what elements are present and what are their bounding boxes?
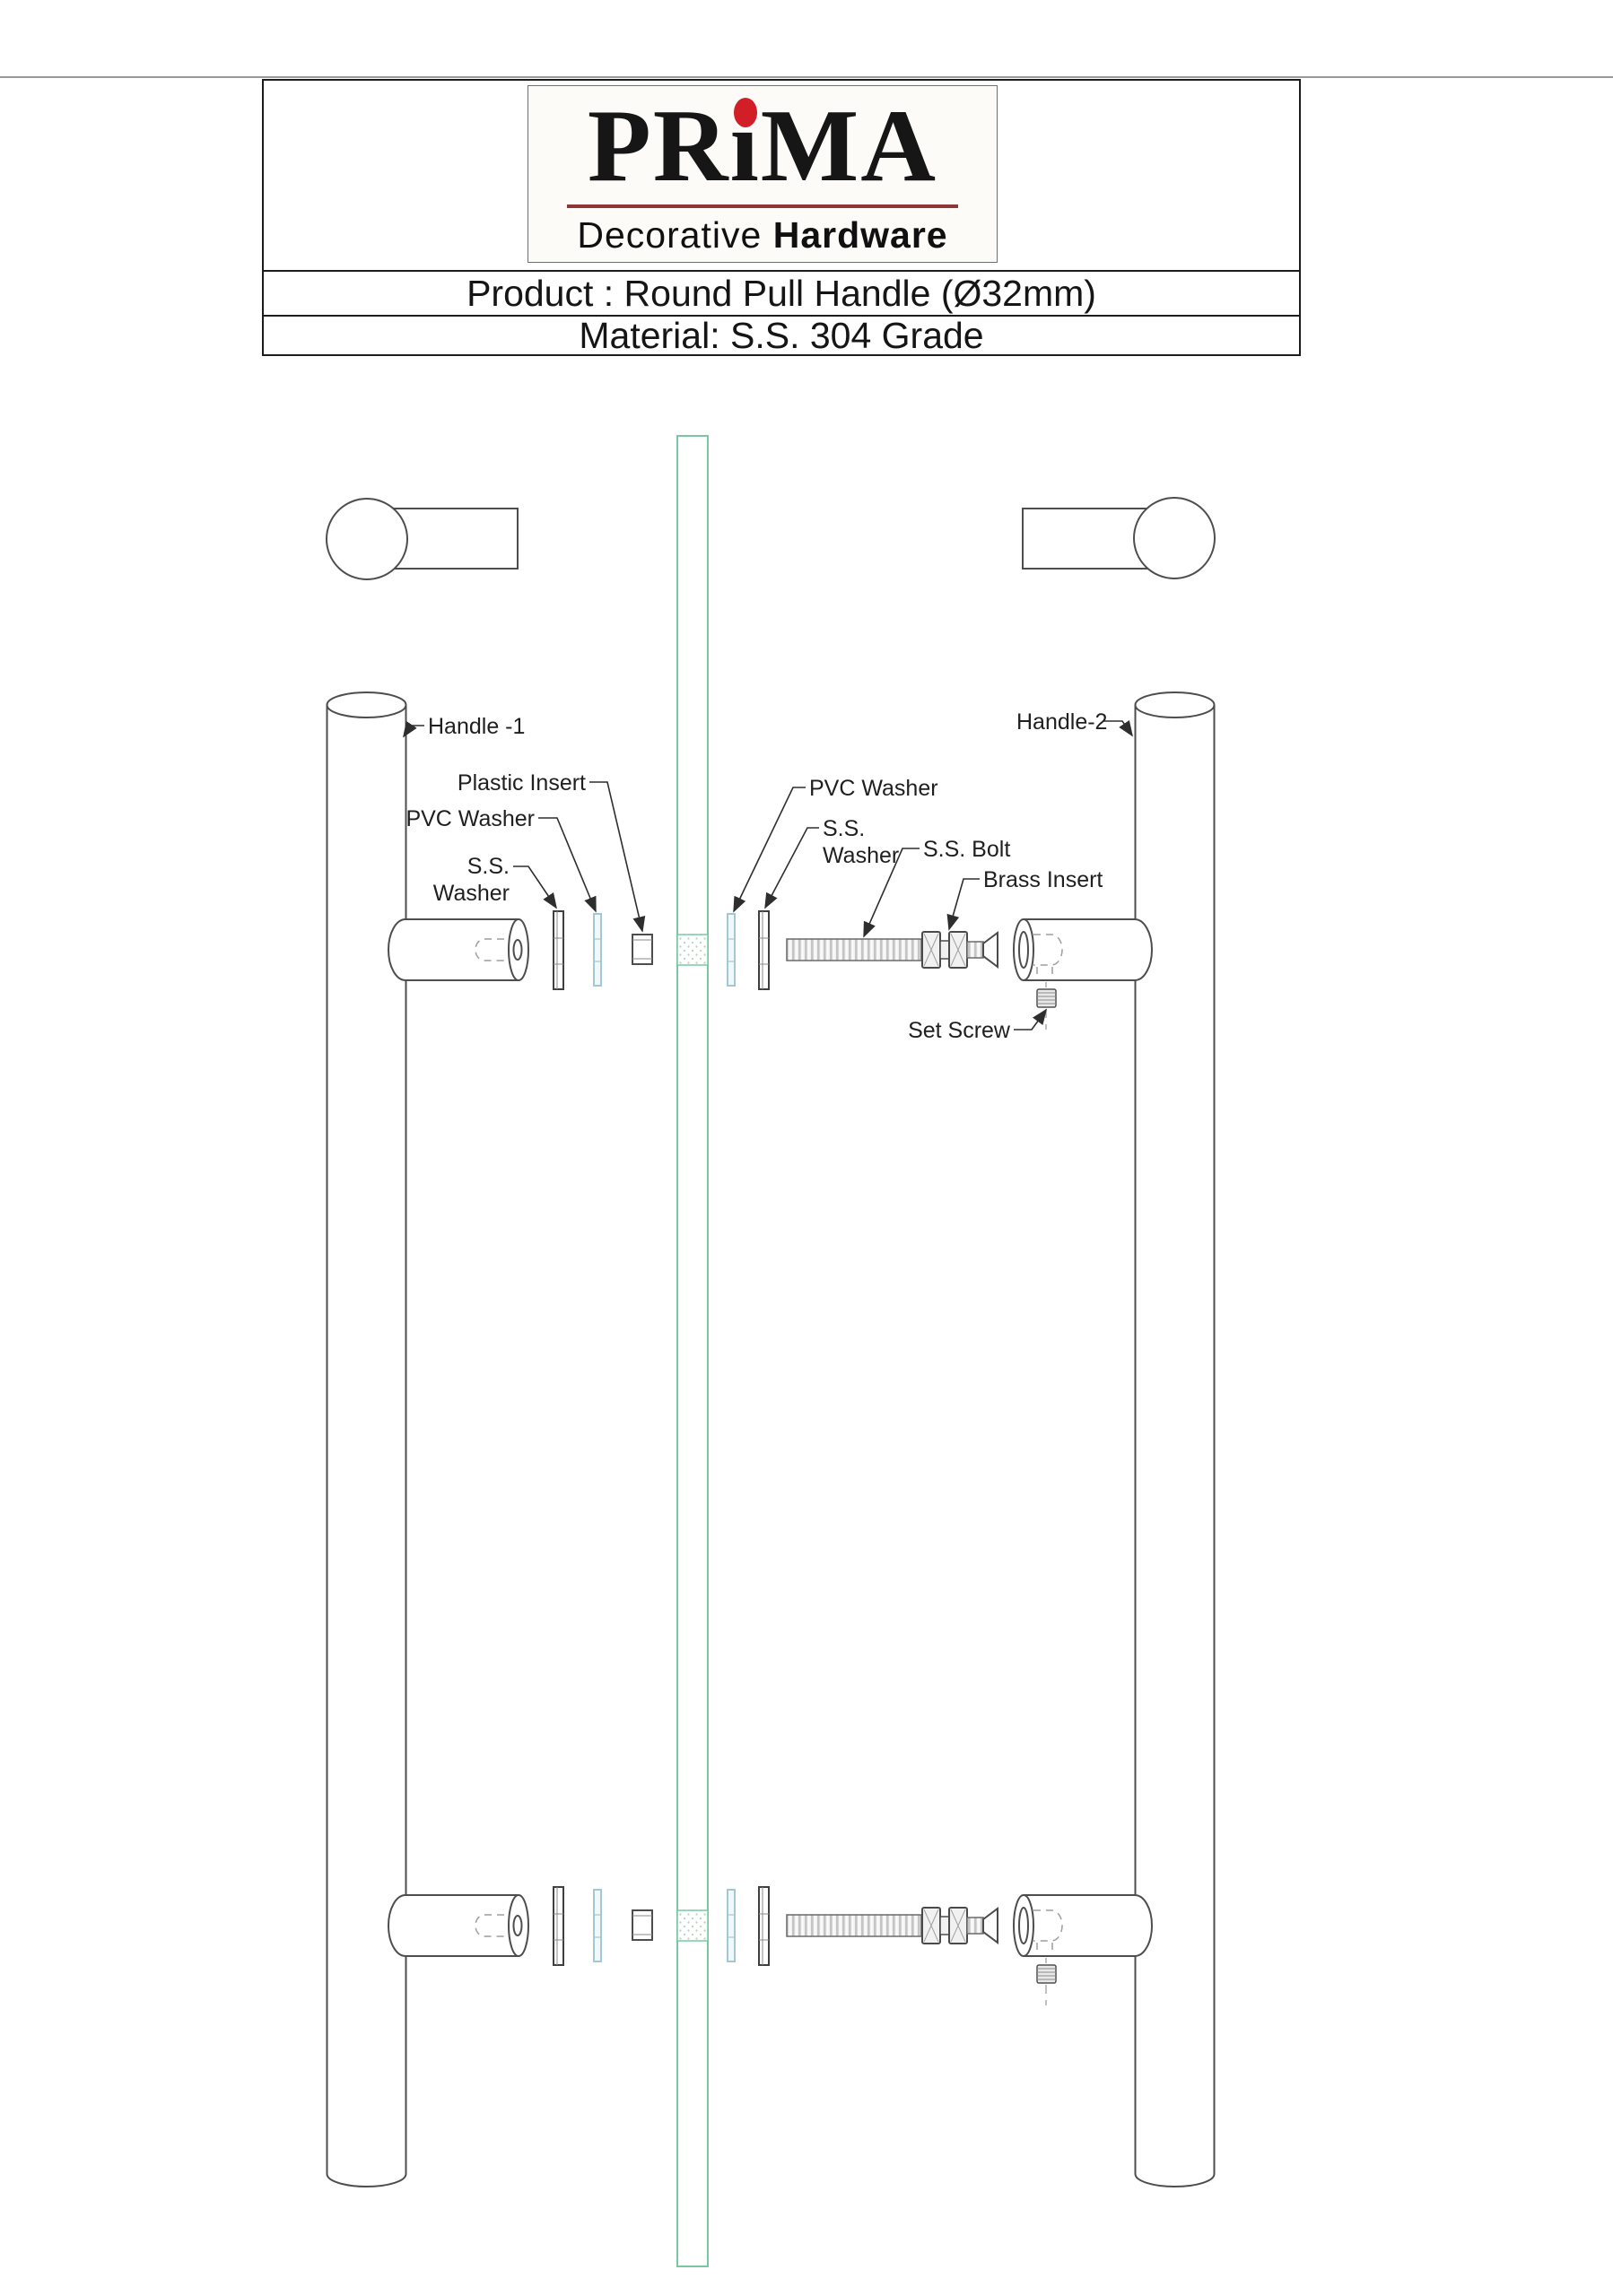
handle-1-tube xyxy=(327,692,406,2187)
bracket-right-post xyxy=(1134,498,1215,578)
leader-set-screw xyxy=(1014,1010,1046,1030)
bracket-left xyxy=(327,499,518,579)
exploded-assembly-bottom xyxy=(388,1887,1152,2005)
label-handle-2: Handle-2 xyxy=(1016,709,1107,735)
part-labels: Handle -1 Handle-2 Plastic Insert PVC Wa… xyxy=(405,709,1107,1043)
leader-ss-washer-left xyxy=(513,866,556,908)
label-plastic-insert: Plastic Insert xyxy=(458,770,586,796)
label-ss-washer-left-1: S.S. xyxy=(467,854,510,879)
glass-panel xyxy=(677,436,708,2266)
label-set-screw: Set Screw xyxy=(908,1018,1011,1043)
leader-pvc-washer-left xyxy=(538,818,596,911)
label-ss-washer-left-2: Washer xyxy=(433,881,510,906)
label-ss-bolt: S.S. Bolt xyxy=(923,837,1010,862)
label-ss-washer-right-2: Washer xyxy=(823,843,899,868)
leader-pvc-washer-right xyxy=(734,787,806,911)
technical-drawing: Handle -1 Handle-2 Plastic Insert PVC Wa… xyxy=(0,0,1613,2296)
label-brass-insert: Brass Insert xyxy=(983,867,1103,892)
leader-brass-insert xyxy=(949,879,980,929)
handle-2-top-cap xyxy=(1136,692,1215,717)
handle-1-top-cap xyxy=(327,692,406,717)
handle-2-bottom-cap xyxy=(1136,2174,1215,2187)
bracket-left-post xyxy=(327,499,407,579)
label-pvc-washer-left: PVC Washer xyxy=(405,806,535,831)
leader-plastic-insert xyxy=(589,782,642,931)
label-ss-washer-right-1: S.S. xyxy=(823,816,865,841)
exploded-assembly-middle xyxy=(388,911,1152,1030)
handle-2-tube xyxy=(1136,692,1215,2187)
bracket-right xyxy=(1023,498,1215,578)
label-handle-1: Handle -1 xyxy=(428,714,525,739)
label-pvc-washer-right: PVC Washer xyxy=(809,776,938,801)
handle-1-bottom-cap xyxy=(327,2174,406,2187)
leader-ss-washer-right xyxy=(765,828,819,908)
